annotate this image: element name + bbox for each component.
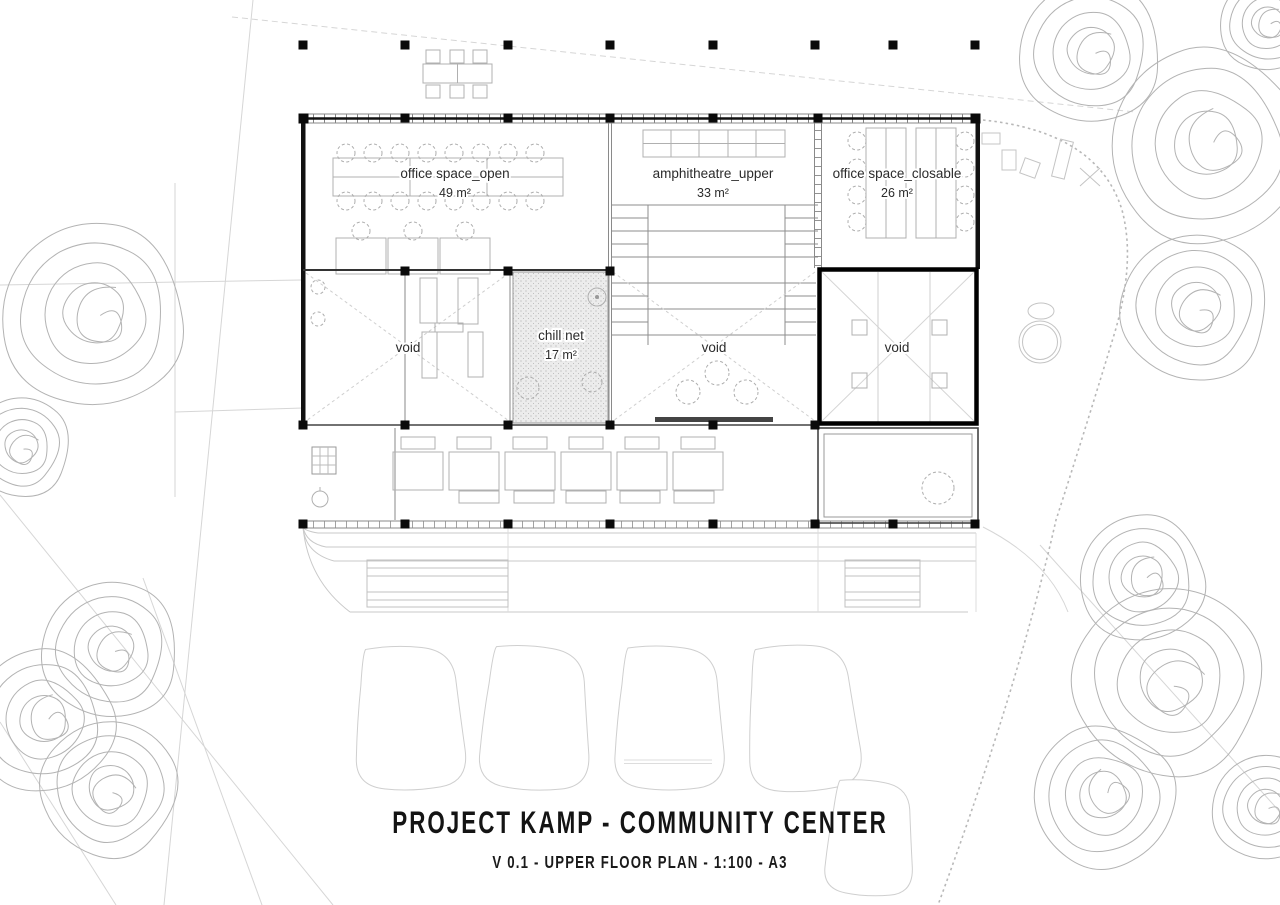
label-office-open: office space_open (400, 166, 509, 181)
step-bench-right (845, 560, 920, 607)
label-void-center: void (702, 340, 727, 355)
title-block: PROJECT KAMP - COMMUNITY CENTER V 0.1 - … (392, 804, 887, 872)
label-chill-net: chill net (538, 328, 584, 343)
area-chill-net: 17 m² (545, 348, 577, 362)
label-void-right: void (885, 340, 910, 355)
area-office-closable: 26 m² (881, 186, 913, 200)
exterior-furniture-icons (982, 133, 1100, 186)
area-office-open: 49 m² (439, 186, 471, 200)
picnic-table-top (423, 50, 492, 98)
ring-planter-icon (1019, 303, 1061, 363)
label-void-left: void (396, 340, 421, 355)
deck-footprint (303, 425, 978, 525)
step-bench-left (367, 560, 508, 607)
label-amphitheatre: amphitheatre_upper (653, 166, 774, 181)
plan-subtitle: V 0.1 - UPPER FLOOR PLAN - 1:100 - A3 (492, 853, 787, 872)
terrace-steps (303, 527, 976, 612)
floor-plan-canvas: office space_open 49 m² amphitheatre_upp… (0, 0, 1280, 905)
label-office-closable: office space_closable (833, 166, 962, 181)
area-amphitheatre: 33 m² (697, 186, 729, 200)
plan-title: PROJECT KAMP - COMMUNITY CENTER (392, 804, 887, 840)
